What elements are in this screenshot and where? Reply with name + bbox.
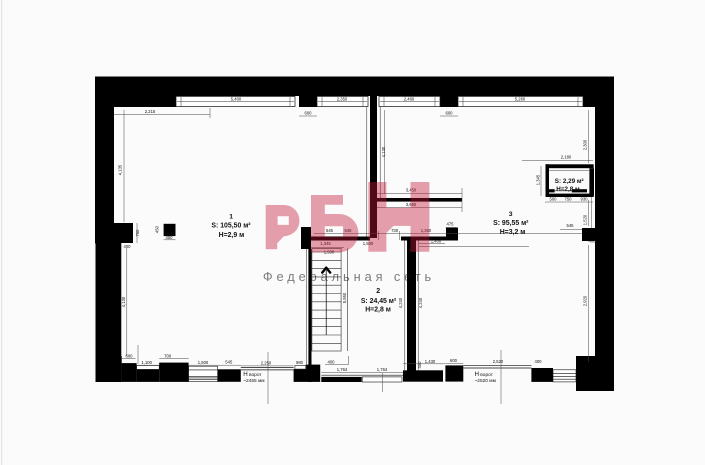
svg-text:400: 400 [328,359,336,364]
svg-text:H=2,9 м: H=2,9 м [219,232,245,239]
svg-text:4,240: 4,240 [398,297,403,308]
svg-text:750: 750 [565,196,573,201]
svg-text:500: 500 [550,196,558,201]
svg-text:700: 700 [164,353,172,358]
svg-text:400: 400 [124,244,132,249]
svg-text:1,500: 1,500 [198,360,209,365]
svg-text:475: 475 [447,222,455,227]
svg-text:1,400: 1,400 [431,239,442,244]
svg-text:545: 545 [225,359,233,364]
svg-text:S: 24,45 м²: S: 24,45 м² [361,298,397,305]
svg-text:545: 545 [326,228,334,233]
svg-text:2,300: 2,300 [583,139,588,150]
svg-text:5,260: 5,260 [515,97,526,102]
svg-text:450: 450 [155,225,160,233]
svg-text:600: 600 [126,353,134,358]
svg-text:2,350: 2,350 [337,97,348,102]
svg-text:1,520: 1,520 [583,214,588,225]
svg-text:1,764: 1,764 [337,367,348,372]
svg-text:H=2,8 м: H=2,8 м [556,186,580,193]
svg-text:2,520: 2,520 [493,359,504,364]
svg-text:1,345: 1,345 [536,174,541,185]
svg-text:2,460: 2,460 [404,97,415,102]
svg-text:450: 450 [417,361,422,369]
svg-text:3: 3 [509,211,513,218]
svg-text:S: 105,50 м²: S: 105,50 м² [211,222,251,229]
svg-text:600: 600 [450,358,458,363]
svg-text:H=3,2 м: H=3,2 м [500,229,526,236]
svg-text:S: 95,55 м²: S: 95,55 м² [493,220,529,227]
svg-text:600: 600 [446,110,454,115]
svg-text:400: 400 [589,238,597,243]
svg-text:980: 980 [296,360,304,365]
svg-text:S: 2,29 м²: S: 2,29 м² [555,178,584,185]
svg-text:4,240: 4,240 [418,297,423,308]
svg-text:545: 545 [567,223,575,228]
svg-text:Н ворот: Н ворот [475,371,494,378]
svg-text:450: 450 [166,235,174,240]
svg-text:2,920: 2,920 [583,295,588,306]
svg-text:5,400: 5,400 [231,97,242,102]
svg-text:1,100: 1,100 [141,360,152,365]
svg-text:930: 930 [581,196,589,201]
svg-text:2,250: 2,250 [261,360,272,365]
svg-text:1: 1 [229,213,233,220]
svg-text:4,130: 4,130 [381,146,386,157]
svg-text:400: 400 [535,359,543,364]
svg-text:1,764: 1,764 [377,367,388,372]
svg-text:Н ворот: Н ворот [243,371,262,378]
svg-text:730: 730 [391,228,399,233]
svg-text:2,215: 2,215 [145,109,156,114]
svg-text:760: 760 [135,229,140,237]
svg-text:2: 2 [376,288,380,295]
svg-text:~2520 мм: ~2520 мм [475,378,496,384]
svg-text:H=2,8 м: H=2,8 м [365,307,391,314]
svg-text:600: 600 [305,110,313,115]
svg-text:2,180: 2,180 [561,155,572,160]
svg-text:4,135: 4,135 [117,164,122,175]
svg-text:5,950: 5,950 [342,292,347,303]
svg-text:4,130: 4,130 [121,296,126,307]
svg-text:Федеральная сеть: Федеральная сеть [263,269,435,284]
svg-text:1,430: 1,430 [425,359,436,364]
svg-text:~2455 мм: ~2455 мм [243,378,264,384]
